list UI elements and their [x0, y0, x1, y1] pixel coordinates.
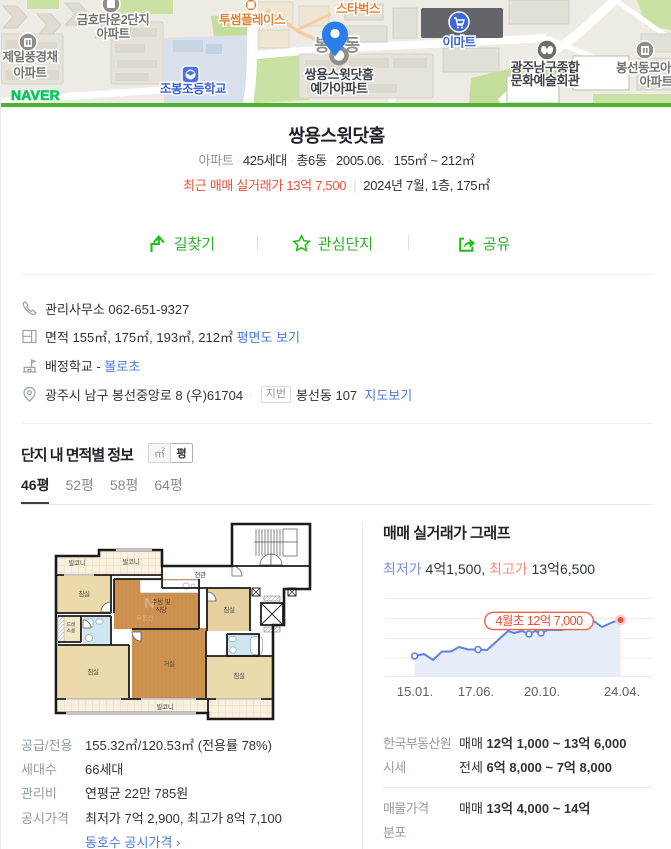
- svg-text:금호타운2단지: 금호타운2단지: [77, 12, 149, 27]
- svg-text:쌍용스윗닷홈: 쌍용스윗닷홈: [305, 67, 374, 82]
- svg-text:아파트: 아파트: [96, 26, 130, 41]
- svg-text:이마트: 이마트: [442, 35, 476, 50]
- svg-text:현관: 현관: [194, 570, 206, 579]
- svg-text:스룸: 스룸: [67, 628, 76, 634]
- svg-text:발코니: 발코니: [68, 558, 85, 567]
- svg-text:거실: 거실: [163, 659, 175, 668]
- svg-text:침실: 침실: [223, 605, 235, 614]
- svg-text:4월초 12억 7,000: 4월초 12억 7,000: [495, 614, 583, 628]
- svg-text:침실: 침실: [87, 667, 99, 676]
- svg-text:문화예술회관: 문화예술회관: [511, 73, 580, 88]
- svg-text:봉선동모아엘: 봉선동모아엘: [616, 60, 671, 75]
- svg-text:스타벅스: 스타벅스: [336, 1, 381, 16]
- svg-text:부동산: 부동산: [136, 613, 154, 622]
- svg-text:식당: 식당: [155, 605, 167, 614]
- svg-text:예가아파트: 예가아파트: [310, 81, 368, 96]
- svg-text:주방 및: 주방 및: [152, 597, 171, 606]
- svg-text:발코니: 발코니: [156, 702, 173, 711]
- svg-text:침실: 침실: [233, 671, 245, 680]
- svg-text:NAVER: NAVER: [11, 87, 60, 103]
- svg-text:발코니: 발코니: [122, 557, 139, 566]
- svg-text:아파트: 아파트: [13, 65, 47, 80]
- svg-text:침실: 침실: [78, 589, 90, 598]
- svg-text:아파트: 아파트: [639, 74, 671, 89]
- svg-text:드레: 드레: [67, 621, 76, 628]
- svg-text:투썸플레이스: 투썸플레이스: [219, 12, 286, 27]
